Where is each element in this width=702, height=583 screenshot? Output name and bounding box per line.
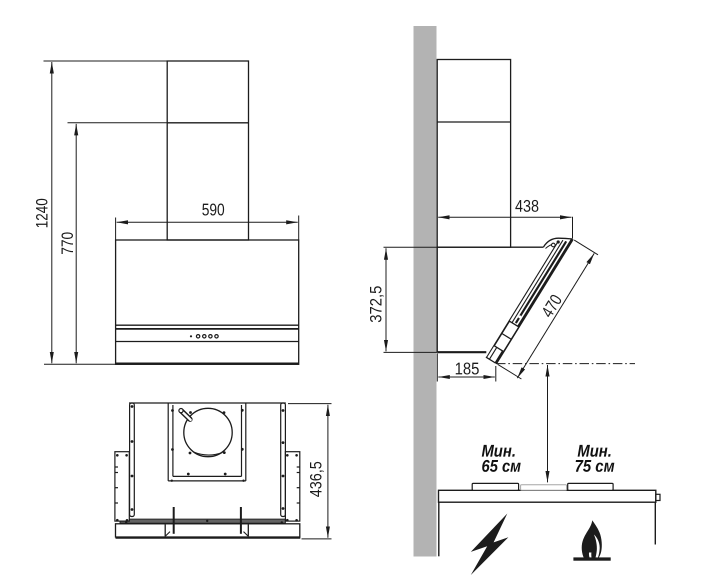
- svg-text:75 см: 75 см: [575, 457, 615, 476]
- svg-text:470: 470: [538, 291, 566, 321]
- svg-text:65 см: 65 см: [482, 457, 522, 476]
- svg-text:770: 770: [58, 232, 77, 255]
- svg-text:185: 185: [455, 359, 480, 378]
- svg-text:1240: 1240: [32, 198, 51, 228]
- svg-text:590: 590: [202, 200, 225, 219]
- svg-text:438: 438: [515, 197, 539, 216]
- svg-text:372,5: 372,5: [366, 286, 385, 323]
- svg-text:436,5: 436,5: [307, 461, 326, 497]
